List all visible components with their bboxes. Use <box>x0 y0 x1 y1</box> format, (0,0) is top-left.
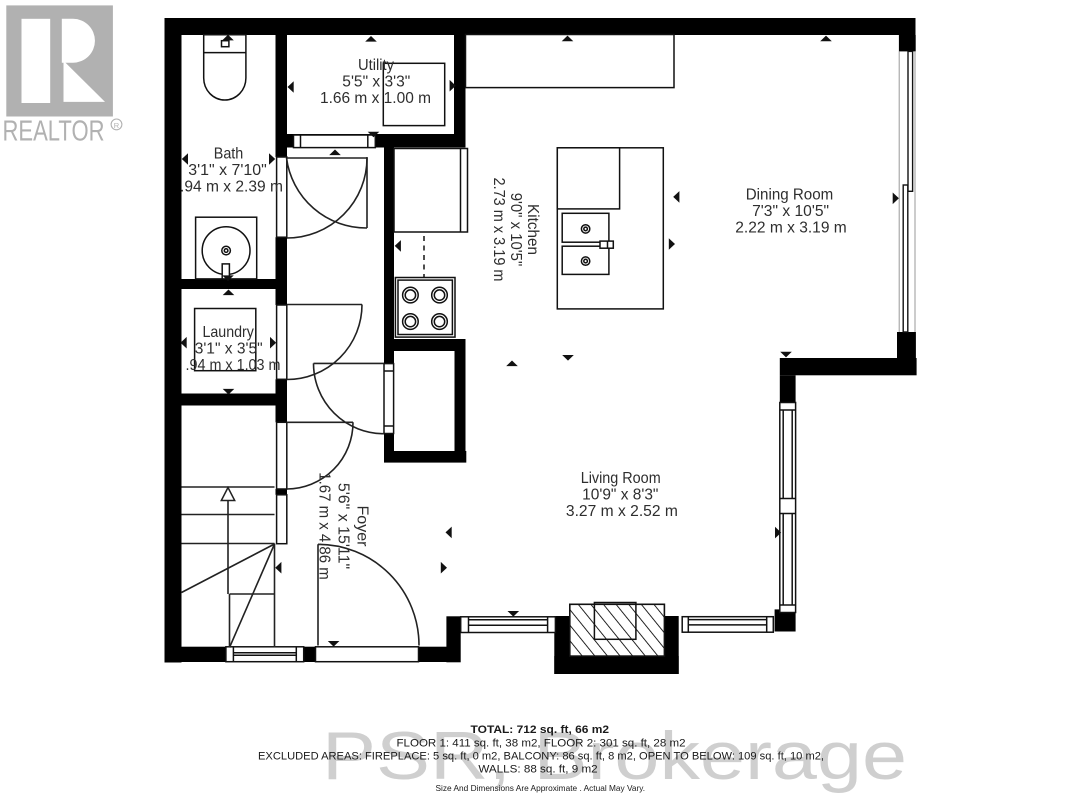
svg-text:9'0" x 10'5": 9'0" x 10'5" <box>507 193 524 267</box>
svg-text:REALTOR: REALTOR <box>3 116 105 148</box>
svg-text:3'1" x 7'10": 3'1" x 7'10" <box>188 162 267 179</box>
svg-text:Dining Room: Dining Room <box>746 186 834 203</box>
svg-text:1.66 m x 1.00 m: 1.66 m x 1.00 m <box>320 90 431 107</box>
svg-text:FLOOR 1: 411 sq. ft, 38 m2, FL: FLOOR 1: 411 sq. ft, 38 m2, FLOOR 2: 301… <box>397 738 686 750</box>
svg-text:TOTAL: 712 sq. ft, 66 m2: TOTAL: 712 sq. ft, 66 m2 <box>471 724 610 736</box>
svg-text:10'9" x 8'3": 10'9" x 8'3" <box>582 487 658 504</box>
svg-text:.94 m x 2.39 m: .94 m x 2.39 m <box>180 179 283 196</box>
svg-text:Living Room: Living Room <box>581 470 661 487</box>
svg-text:3.27 m x 2.52 m: 3.27 m x 2.52 m <box>566 503 678 520</box>
svg-text:Bath: Bath <box>214 145 244 162</box>
svg-text:3'1" x 3'5": 3'1" x 3'5" <box>195 341 263 358</box>
svg-text:WALLS: 88 sq. ft, 9 m2: WALLS: 88 sq. ft, 9 m2 <box>478 764 597 776</box>
svg-text:R: R <box>114 121 120 130</box>
svg-text:1.67 m x 4.86 m: 1.67 m x 4.86 m <box>316 472 333 580</box>
svg-text:Size And Dimensions Are Approx: Size And Dimensions Are Approximate . Ac… <box>436 783 646 793</box>
svg-text:Foyer: Foyer <box>354 506 371 547</box>
svg-text:5'6" x 15'11": 5'6" x 15'11" <box>335 483 352 569</box>
svg-text:2.73 m x 3.19 m: 2.73 m x 3.19 m <box>490 178 507 282</box>
svg-text:5'5" x 3'3": 5'5" x 3'3" <box>342 74 410 91</box>
svg-text:.94 m x 1.03 m: .94 m x 1.03 m <box>186 357 281 374</box>
svg-text:Laundry: Laundry <box>202 324 254 341</box>
svg-text:EXCLUDED AREAS: FIREPLACE: 5 s: EXCLUDED AREAS: FIREPLACE: 5 sq. ft, 0 m… <box>258 751 824 763</box>
svg-text:2.22 m x 3.19 m: 2.22 m x 3.19 m <box>735 220 847 237</box>
svg-text:Utility: Utility <box>358 57 394 74</box>
svg-text:7'3" x 10'5": 7'3" x 10'5" <box>752 203 829 220</box>
svg-text:Kitchen: Kitchen <box>524 204 541 255</box>
